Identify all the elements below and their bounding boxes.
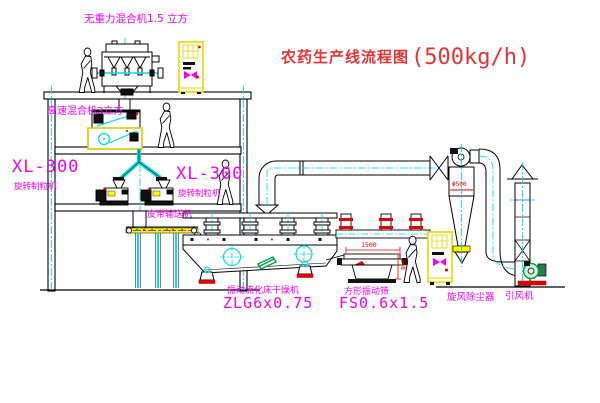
label-granulator-left-model: XL-300 (12, 159, 79, 176)
gravity-free-mixer (92, 41, 163, 95)
control-cabinet-top (179, 42, 203, 94)
title-capacity: (500kg/h) (411, 45, 530, 70)
granulator-right (141, 180, 173, 205)
building-floor2-beam (55, 147, 241, 154)
flow-diagram-canvas: 农药生产线流程图 (500kg/h) 无重力混合机1.5 立方 高速混合机3立方… (0, 0, 600, 403)
label-speed-mixer: 高速混合机3立方 (47, 107, 123, 117)
exhaust-duct (256, 156, 448, 213)
indicator-light (445, 269, 448, 272)
dim-sieve-height: 540 (399, 259, 405, 270)
dim-sieve-length: 1500 (361, 242, 377, 249)
label-fan: 引风机 (505, 292, 534, 302)
fluid-bed-dryer (183, 212, 344, 284)
building-roof-beam (44, 92, 251, 99)
title-chinese: 农药生产线流程图 (281, 46, 409, 70)
air-manifold (336, 214, 430, 238)
diagram-title: 农药生产线流程图 (500kg/h) (281, 45, 530, 70)
cyclone (449, 144, 479, 267)
label-granulator-right-name: 旋转制粒机 (178, 190, 221, 199)
label-gravity-mixer: 无重力混合机1.5 立方 (84, 14, 188, 25)
dim-cyclone-dia: Φ500 (452, 182, 466, 188)
label-cyclone: 旋风除尘器 (447, 293, 495, 303)
indicator-light (198, 46, 201, 49)
granulator-left (96, 180, 128, 205)
label-granulator-left-name: 旋转制粒机 (14, 183, 57, 192)
label-dryer-model: ZLG6x0.75 (223, 296, 313, 311)
control-cabinet-ground (428, 232, 452, 285)
label-belt-conveyor: 皮带输送机 (147, 211, 192, 220)
person-figure (158, 103, 174, 148)
mixer-discharge (121, 89, 133, 95)
label-sieve-model: FS0.6x1.5 (339, 296, 429, 311)
label-granulator-right-model: XL-300 (176, 166, 243, 183)
square-sieve (337, 247, 407, 283)
